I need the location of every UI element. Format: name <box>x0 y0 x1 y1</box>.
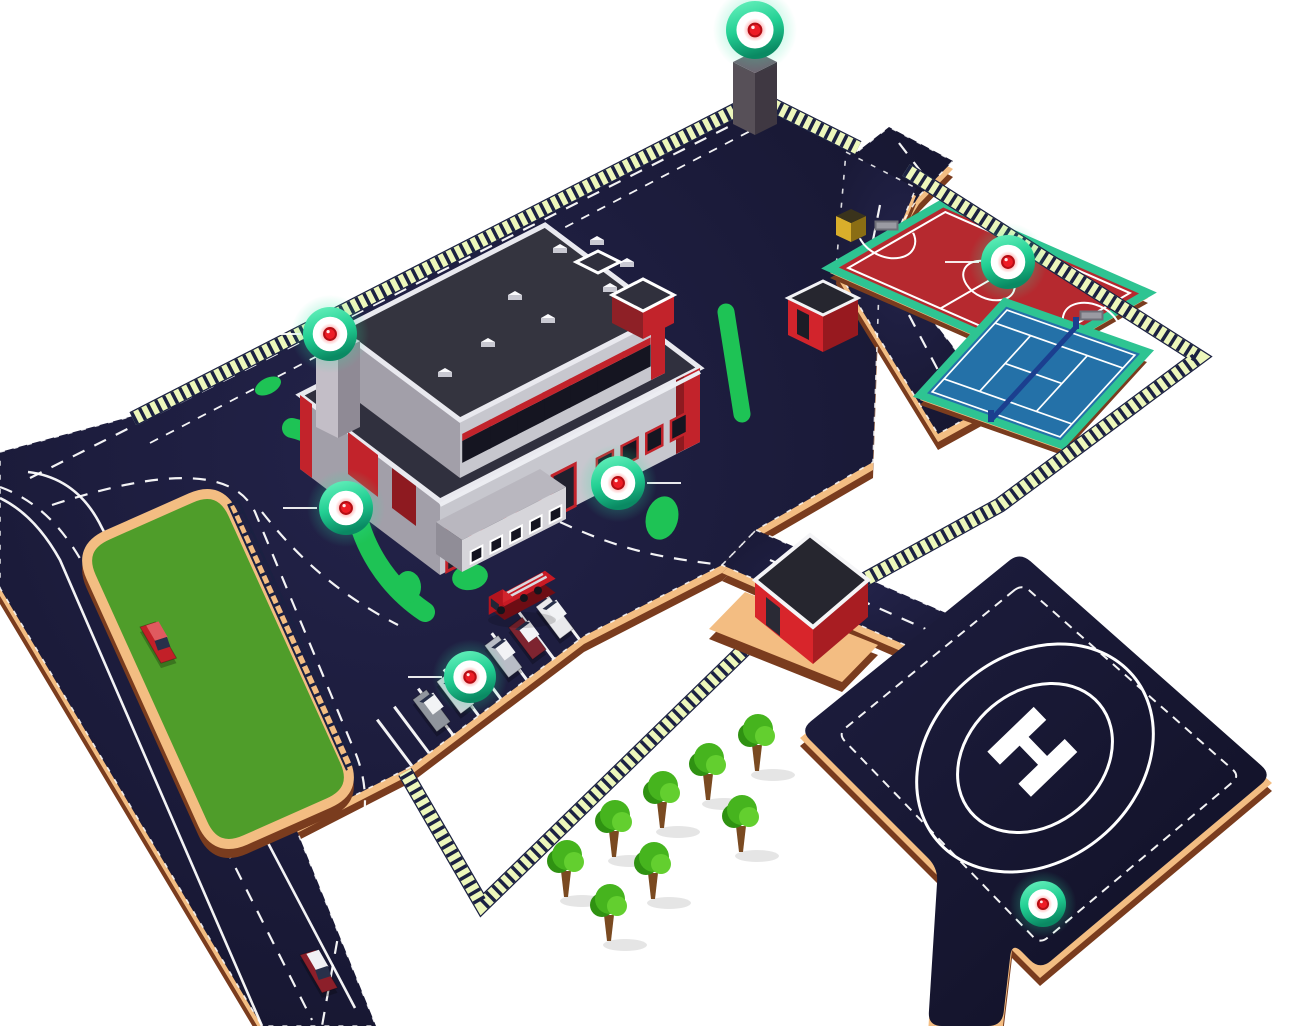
vegetation-layer <box>547 714 795 951</box>
campus-map-illustration: H <box>0 0 1292 1026</box>
perimeter-tower-marker[interactable] <box>713 0 797 72</box>
watch-tower <box>733 62 755 135</box>
futsal-goal <box>1081 312 1103 320</box>
helipad-marker[interactable] <box>1010 871 1077 938</box>
isometric-map-canvas: H <box>0 0 1292 1026</box>
futsal-goal <box>876 222 898 230</box>
